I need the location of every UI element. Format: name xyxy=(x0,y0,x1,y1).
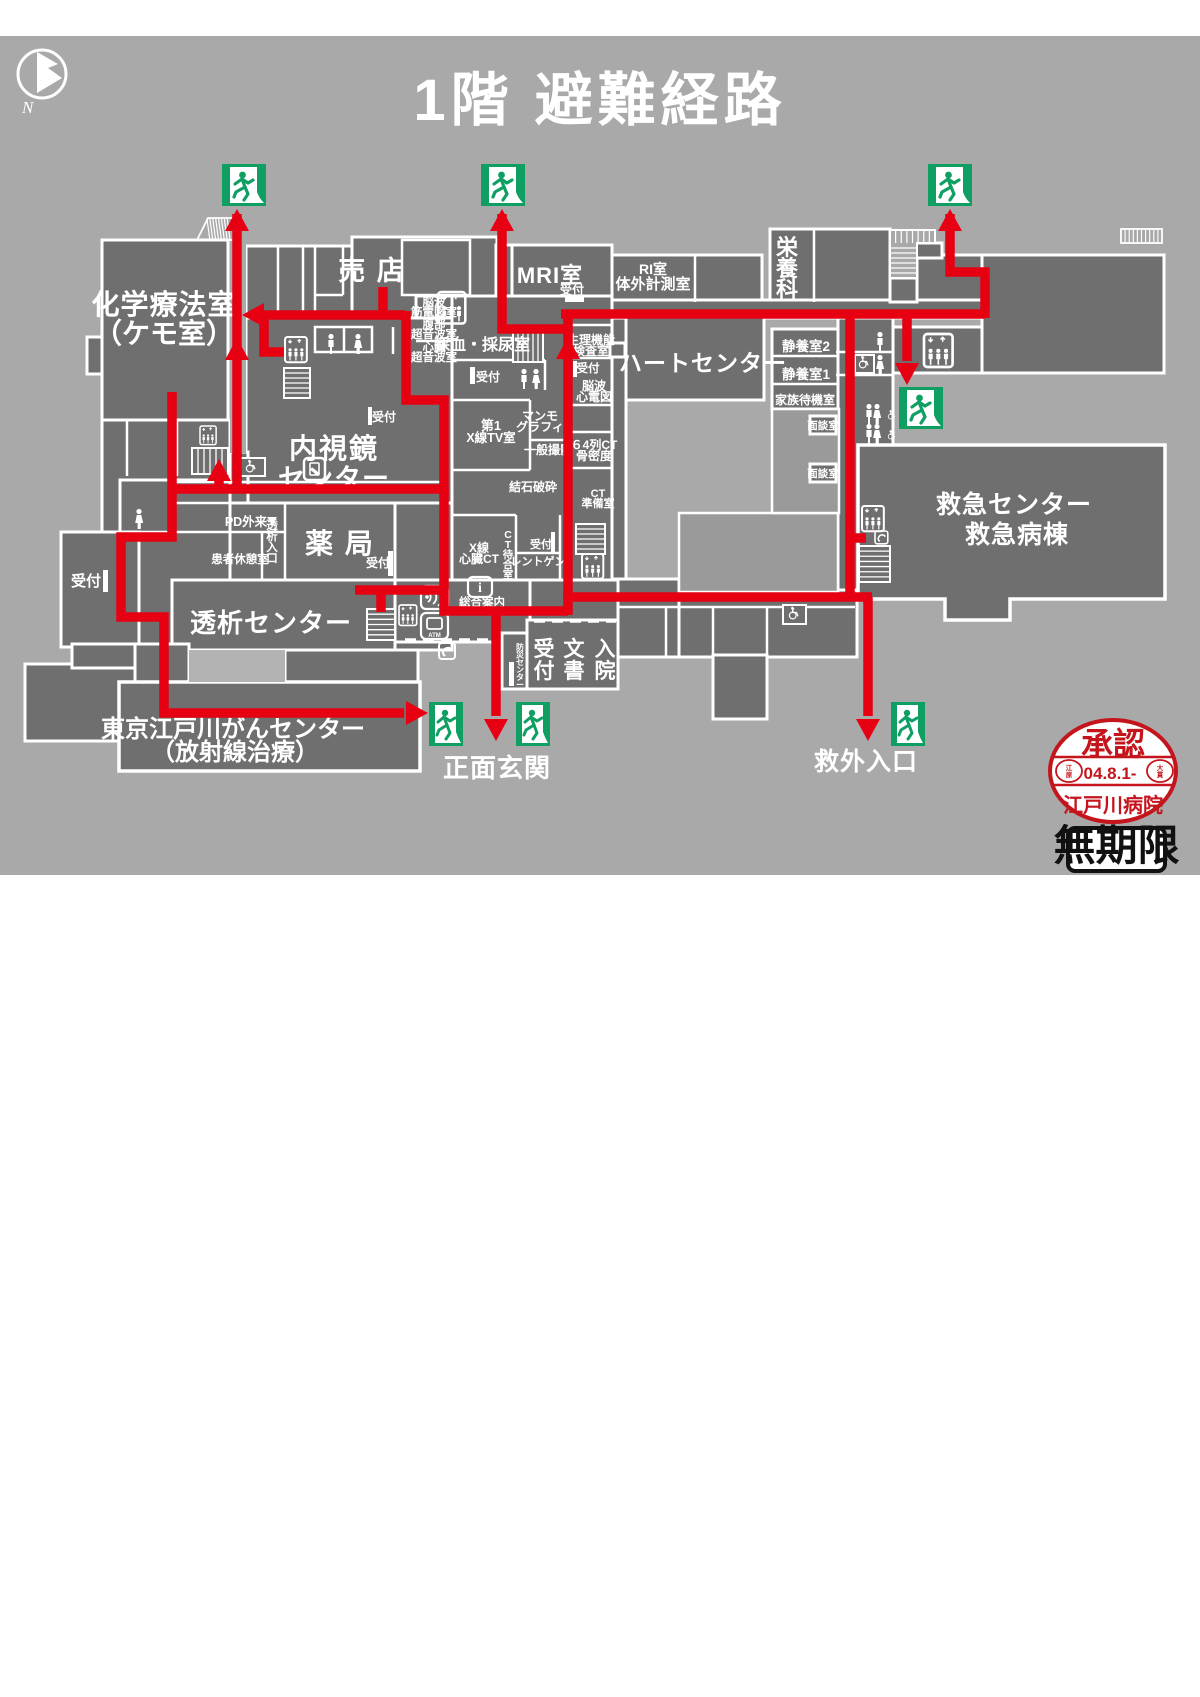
svg-text:心電図: 心電図 xyxy=(576,390,612,404)
svg-text:受付: 受付 xyxy=(372,409,396,424)
svg-text:救外入口: 救外入口 xyxy=(814,747,918,776)
svg-text:化学療法室: 化学療法室 xyxy=(91,288,236,320)
svg-text:面談室: 面談室 xyxy=(807,467,839,480)
svg-text:内視鏡: 内視鏡 xyxy=(289,432,379,464)
svg-text:救急病棟: 救急病棟 xyxy=(965,520,1069,549)
svg-text:家族待機室: 家族待機室 xyxy=(775,392,835,407)
svg-text:江: 江 xyxy=(1066,763,1073,772)
svg-text:文: 文 xyxy=(564,637,586,661)
svg-text:受付: 受付 xyxy=(577,361,600,375)
svg-text:入: 入 xyxy=(595,638,616,661)
svg-text:売 店: 売 店 xyxy=(338,256,406,286)
svg-text:大: 大 xyxy=(1157,763,1164,772)
svg-text:体外計測室: 体外計測室 xyxy=(615,275,690,293)
svg-text:超音波室: 超音波室 xyxy=(410,350,457,364)
svg-text:原: 原 xyxy=(1066,771,1073,779)
svg-text:PD外来: PD外来 xyxy=(225,514,268,529)
svg-text:付: 付 xyxy=(534,660,555,683)
svg-text:X線TV室: X線TV室 xyxy=(466,430,516,445)
svg-text:救急センター: 救急センター xyxy=(936,491,1092,519)
svg-text:貫: 貫 xyxy=(1157,770,1164,779)
svg-text:栄養科: 栄養科 xyxy=(775,235,799,302)
svg-text:静養室1: 静養室1 xyxy=(782,366,830,382)
svg-text:N: N xyxy=(21,98,35,117)
svg-text:薬 局: 薬 局 xyxy=(305,528,375,559)
svg-text:（ケモ室）: （ケモ室） xyxy=(94,317,234,349)
svg-text:無期限: 無期限 xyxy=(1053,822,1179,869)
svg-text:承認: 承認 xyxy=(1081,726,1145,762)
svg-text:正面玄関: 正面玄関 xyxy=(443,753,551,783)
svg-text:受付: 受付 xyxy=(476,369,500,384)
svg-text:筋電図室: 筋電図室 xyxy=(410,305,457,319)
svg-text:受付: 受付 xyxy=(366,555,390,570)
svg-text:結石破砕: 結石破砕 xyxy=(509,479,557,494)
svg-text:受付: 受付 xyxy=(530,537,552,551)
svg-text:心臓CT: 心臓CT xyxy=(459,551,500,566)
svg-text:04.8.1-: 04.8.1- xyxy=(1084,764,1137,783)
svg-text:院: 院 xyxy=(595,659,616,683)
svg-text:透析入口: 透析入口 xyxy=(266,519,278,565)
svg-text:患者休憩室: 患者休憩室 xyxy=(211,552,269,566)
svg-text:防災センター: 防災センター xyxy=(515,642,525,690)
svg-text:受: 受 xyxy=(534,637,555,661)
svg-text:検査室: 検査室 xyxy=(573,343,609,358)
svg-text:書: 書 xyxy=(564,659,585,683)
svg-text:ハートセンター: ハートセンター xyxy=(619,350,787,376)
svg-text:透析センター: 透析センター xyxy=(190,608,352,638)
svg-text:1階 避難経路: 1階 避難経路 xyxy=(413,68,786,133)
svg-text:骨密度: 骨密度 xyxy=(576,448,613,463)
svg-text:グラフィ: グラフィ xyxy=(516,419,564,434)
svg-text:超音波室: 超音波室 xyxy=(410,327,457,341)
svg-text:レントゲン: レントゲン xyxy=(511,554,566,568)
svg-text:受付: 受付 xyxy=(560,282,584,297)
svg-text:ATM: ATM xyxy=(428,633,441,639)
svg-text:RI室: RI室 xyxy=(639,261,667,277)
svg-text:（放射線治療）: （放射線治療） xyxy=(151,738,319,766)
svg-text:静養室2: 静養室2 xyxy=(782,338,830,354)
svg-text:江戸川病院: 江戸川病院 xyxy=(1063,793,1163,817)
svg-text:受付: 受付 xyxy=(71,572,101,590)
svg-text:面談室: 面談室 xyxy=(807,419,839,432)
svg-text:準備室: 準備室 xyxy=(582,496,615,510)
